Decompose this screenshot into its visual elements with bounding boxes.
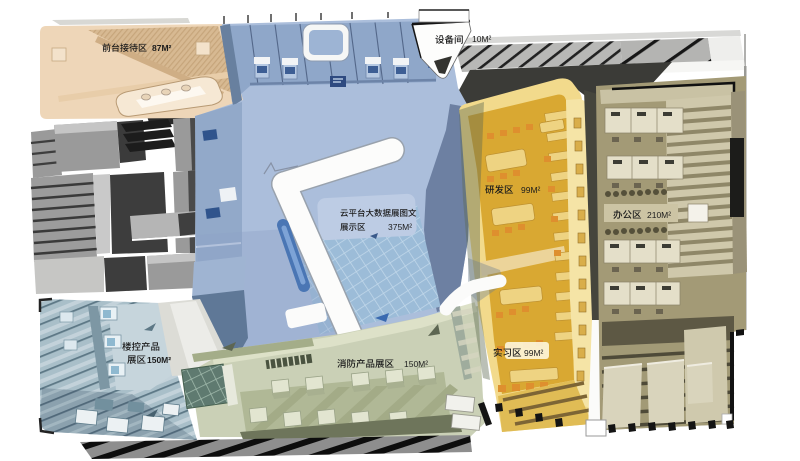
svg-text:210M²: 210M² [647,210,671,220]
svg-text:99M²: 99M² [524,348,544,358]
svg-text:10M²: 10M² [472,34,492,44]
svg-text:375M²: 375M² [388,222,412,232]
svg-text:150M²: 150M² [147,355,171,365]
svg-text:150M²: 150M² [404,359,428,369]
svg-text:99M²: 99M² [521,185,541,195]
svg-text:87M²: 87M² [152,43,172,53]
